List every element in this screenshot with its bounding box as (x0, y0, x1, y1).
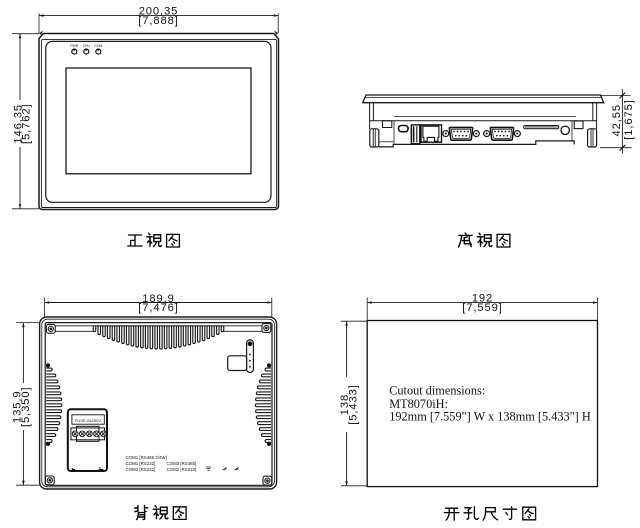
svg-text:[5,350]: [5,350] (20, 387, 32, 428)
svg-text:[5,433]: [5,433] (348, 384, 360, 425)
svg-text:42,55: 42,55 (611, 104, 623, 137)
svg-text:COM2 [RS232]: COM2 [RS232] (167, 467, 197, 472)
svg-text:COM3 [RS232]: COM3 [RS232] (126, 467, 156, 472)
svg-text:[7,559]: [7,559] (462, 302, 503, 314)
svg-text:[7,888]: [7,888] (138, 15, 179, 27)
svg-text:[5,762]: [5,762] (20, 104, 32, 145)
svg-text:COM1 [RS232]: COM1 [RS232] (126, 461, 156, 466)
svg-text:FUSE:2A250V: FUSE:2A250V (75, 418, 101, 423)
svg-text:COM3 [RS485]: COM3 [RS485] (167, 461, 197, 466)
svg-text:PWR: PWR (70, 44, 78, 48)
svg-text:[1,675]: [1,675] (623, 99, 635, 140)
svg-text:192mm [7.559"] W x 138mm [5.43: 192mm [7.559"] W x 138mm [5.433"] H (389, 410, 591, 424)
svg-text:COM1 [RS485 2/4W]: COM1 [RS485 2/4W] (126, 455, 167, 460)
svg-text:CPU: CPU (83, 44, 91, 48)
svg-text:COM: COM (94, 44, 102, 48)
svg-text:Cutout dimensions:: Cutout dimensions: (389, 383, 485, 397)
svg-text:[7,476]: [7,476] (138, 302, 179, 314)
